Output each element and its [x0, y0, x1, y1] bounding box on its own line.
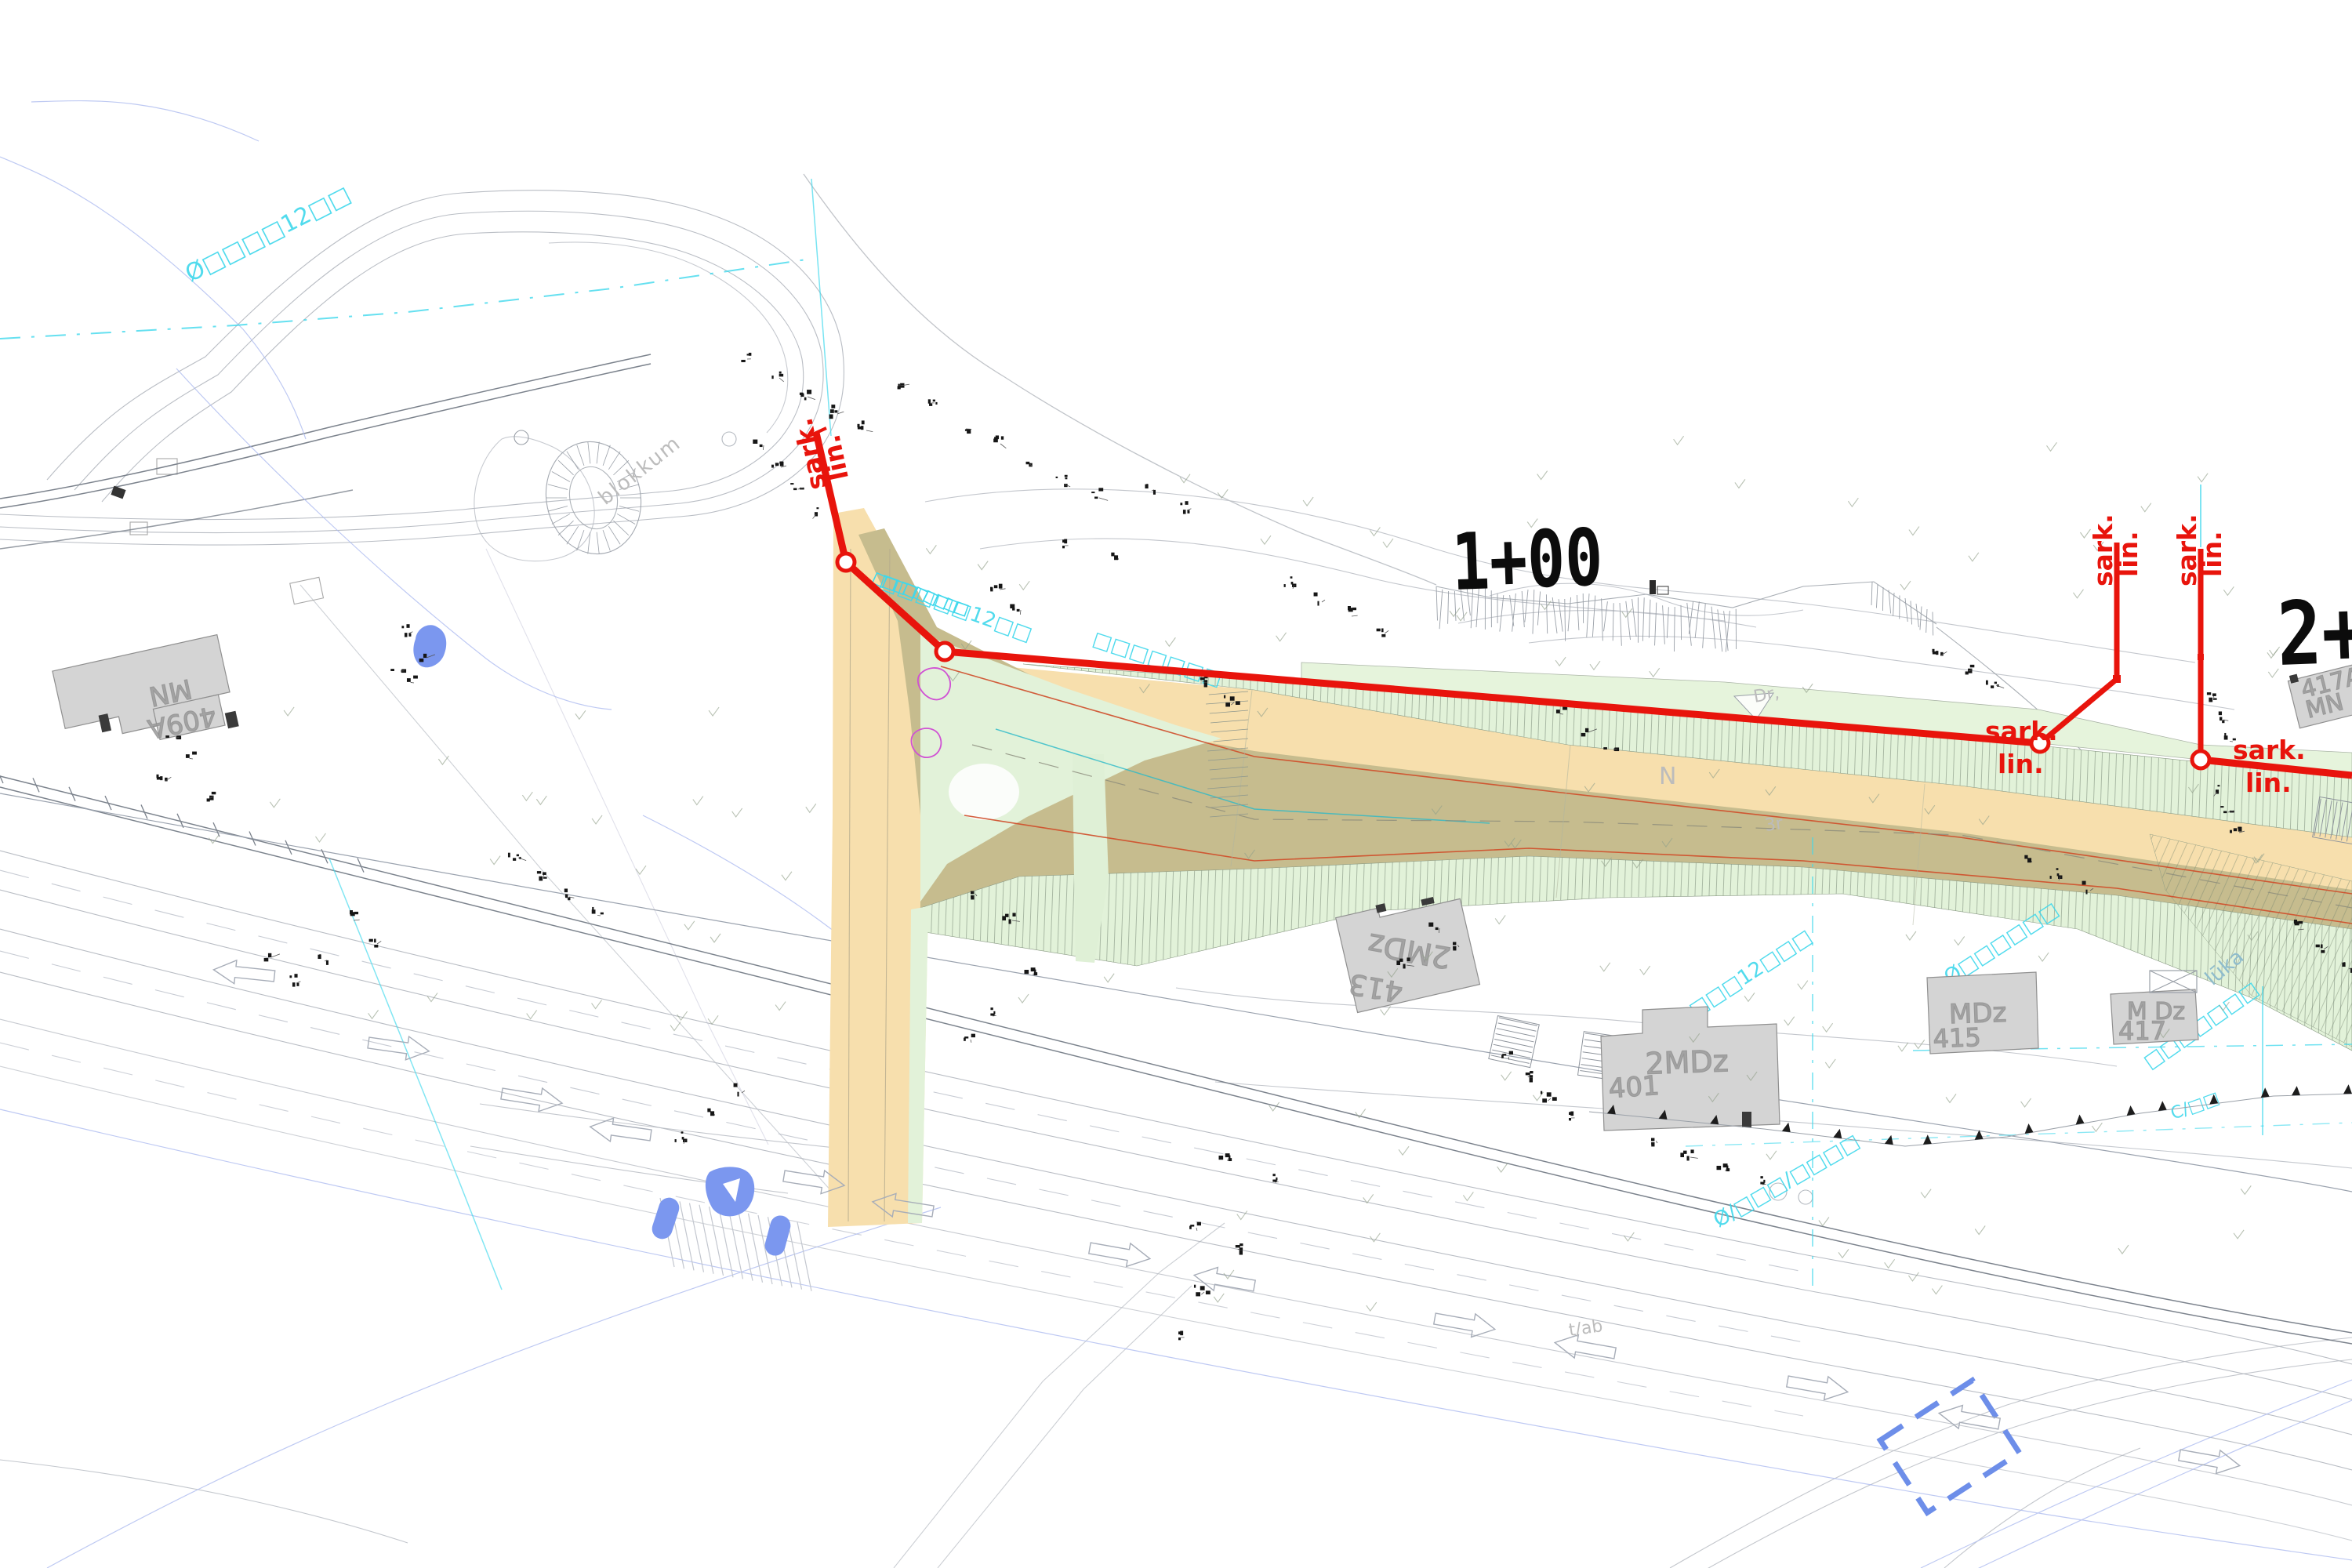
building-401: 2MDz 401: [1601, 1007, 1780, 1131]
marker-label-start: sark. lin.: [787, 410, 855, 492]
alignment-node: [936, 643, 953, 660]
building-417: M Dz 417: [2111, 971, 2198, 1046]
marker-text: lin.: [1998, 749, 2044, 779]
building-label: 401: [1607, 1070, 1661, 1105]
infield-bare-patch: [949, 764, 1019, 820]
marker-text: lin.: [2245, 768, 2292, 798]
annotation-text: 3r: [1763, 814, 1784, 836]
annotation-text: N: [1659, 763, 1676, 790]
marker-text: lin.: [2113, 531, 2143, 577]
alignment-node: [837, 554, 855, 571]
alignment-node: [2192, 751, 2209, 768]
site-plan-canvas: Ø□□□□12□□ □□□□□12□□ Ø□□□□12□□□ Ø□□□□□□ Ø…: [0, 0, 2352, 1568]
marker-label-v1: sark. lin.: [2088, 514, 2143, 586]
road-corridor: [828, 508, 2352, 1227]
pond: [413, 625, 446, 667]
station-label-2: 2+: [2275, 581, 2352, 686]
annotation-text: blokkum: [594, 431, 686, 510]
utility-label: Ø/□□□/□□□□: [1710, 1130, 1864, 1232]
alignment-point: [2113, 675, 2121, 683]
loop-road: [0, 191, 844, 563]
marker-text: sark.: [2233, 735, 2306, 765]
building-409a: MN 409A: [53, 634, 239, 763]
building-label: 417: [2118, 1016, 2166, 1046]
railway-ties: [0, 769, 364, 873]
mint-sliver: [908, 906, 928, 1223]
annotation-text: t/ab: [1567, 1316, 1604, 1341]
building-label: 415: [1933, 1022, 1981, 1054]
marker-text: sark.: [1985, 716, 2058, 746]
marker-label-v2: sark. lin.: [2172, 514, 2227, 586]
blue-dashed-box: [1880, 1381, 2019, 1513]
building-415: MDz 415: [1927, 972, 2038, 1054]
gable-roof-outline: [2150, 971, 2197, 993]
marker-text: lin.: [2197, 531, 2227, 577]
station-label-1: 1+00: [1450, 513, 1605, 609]
traffic-island-capsule: [763, 1214, 793, 1258]
alignment-point: [2198, 654, 2204, 660]
